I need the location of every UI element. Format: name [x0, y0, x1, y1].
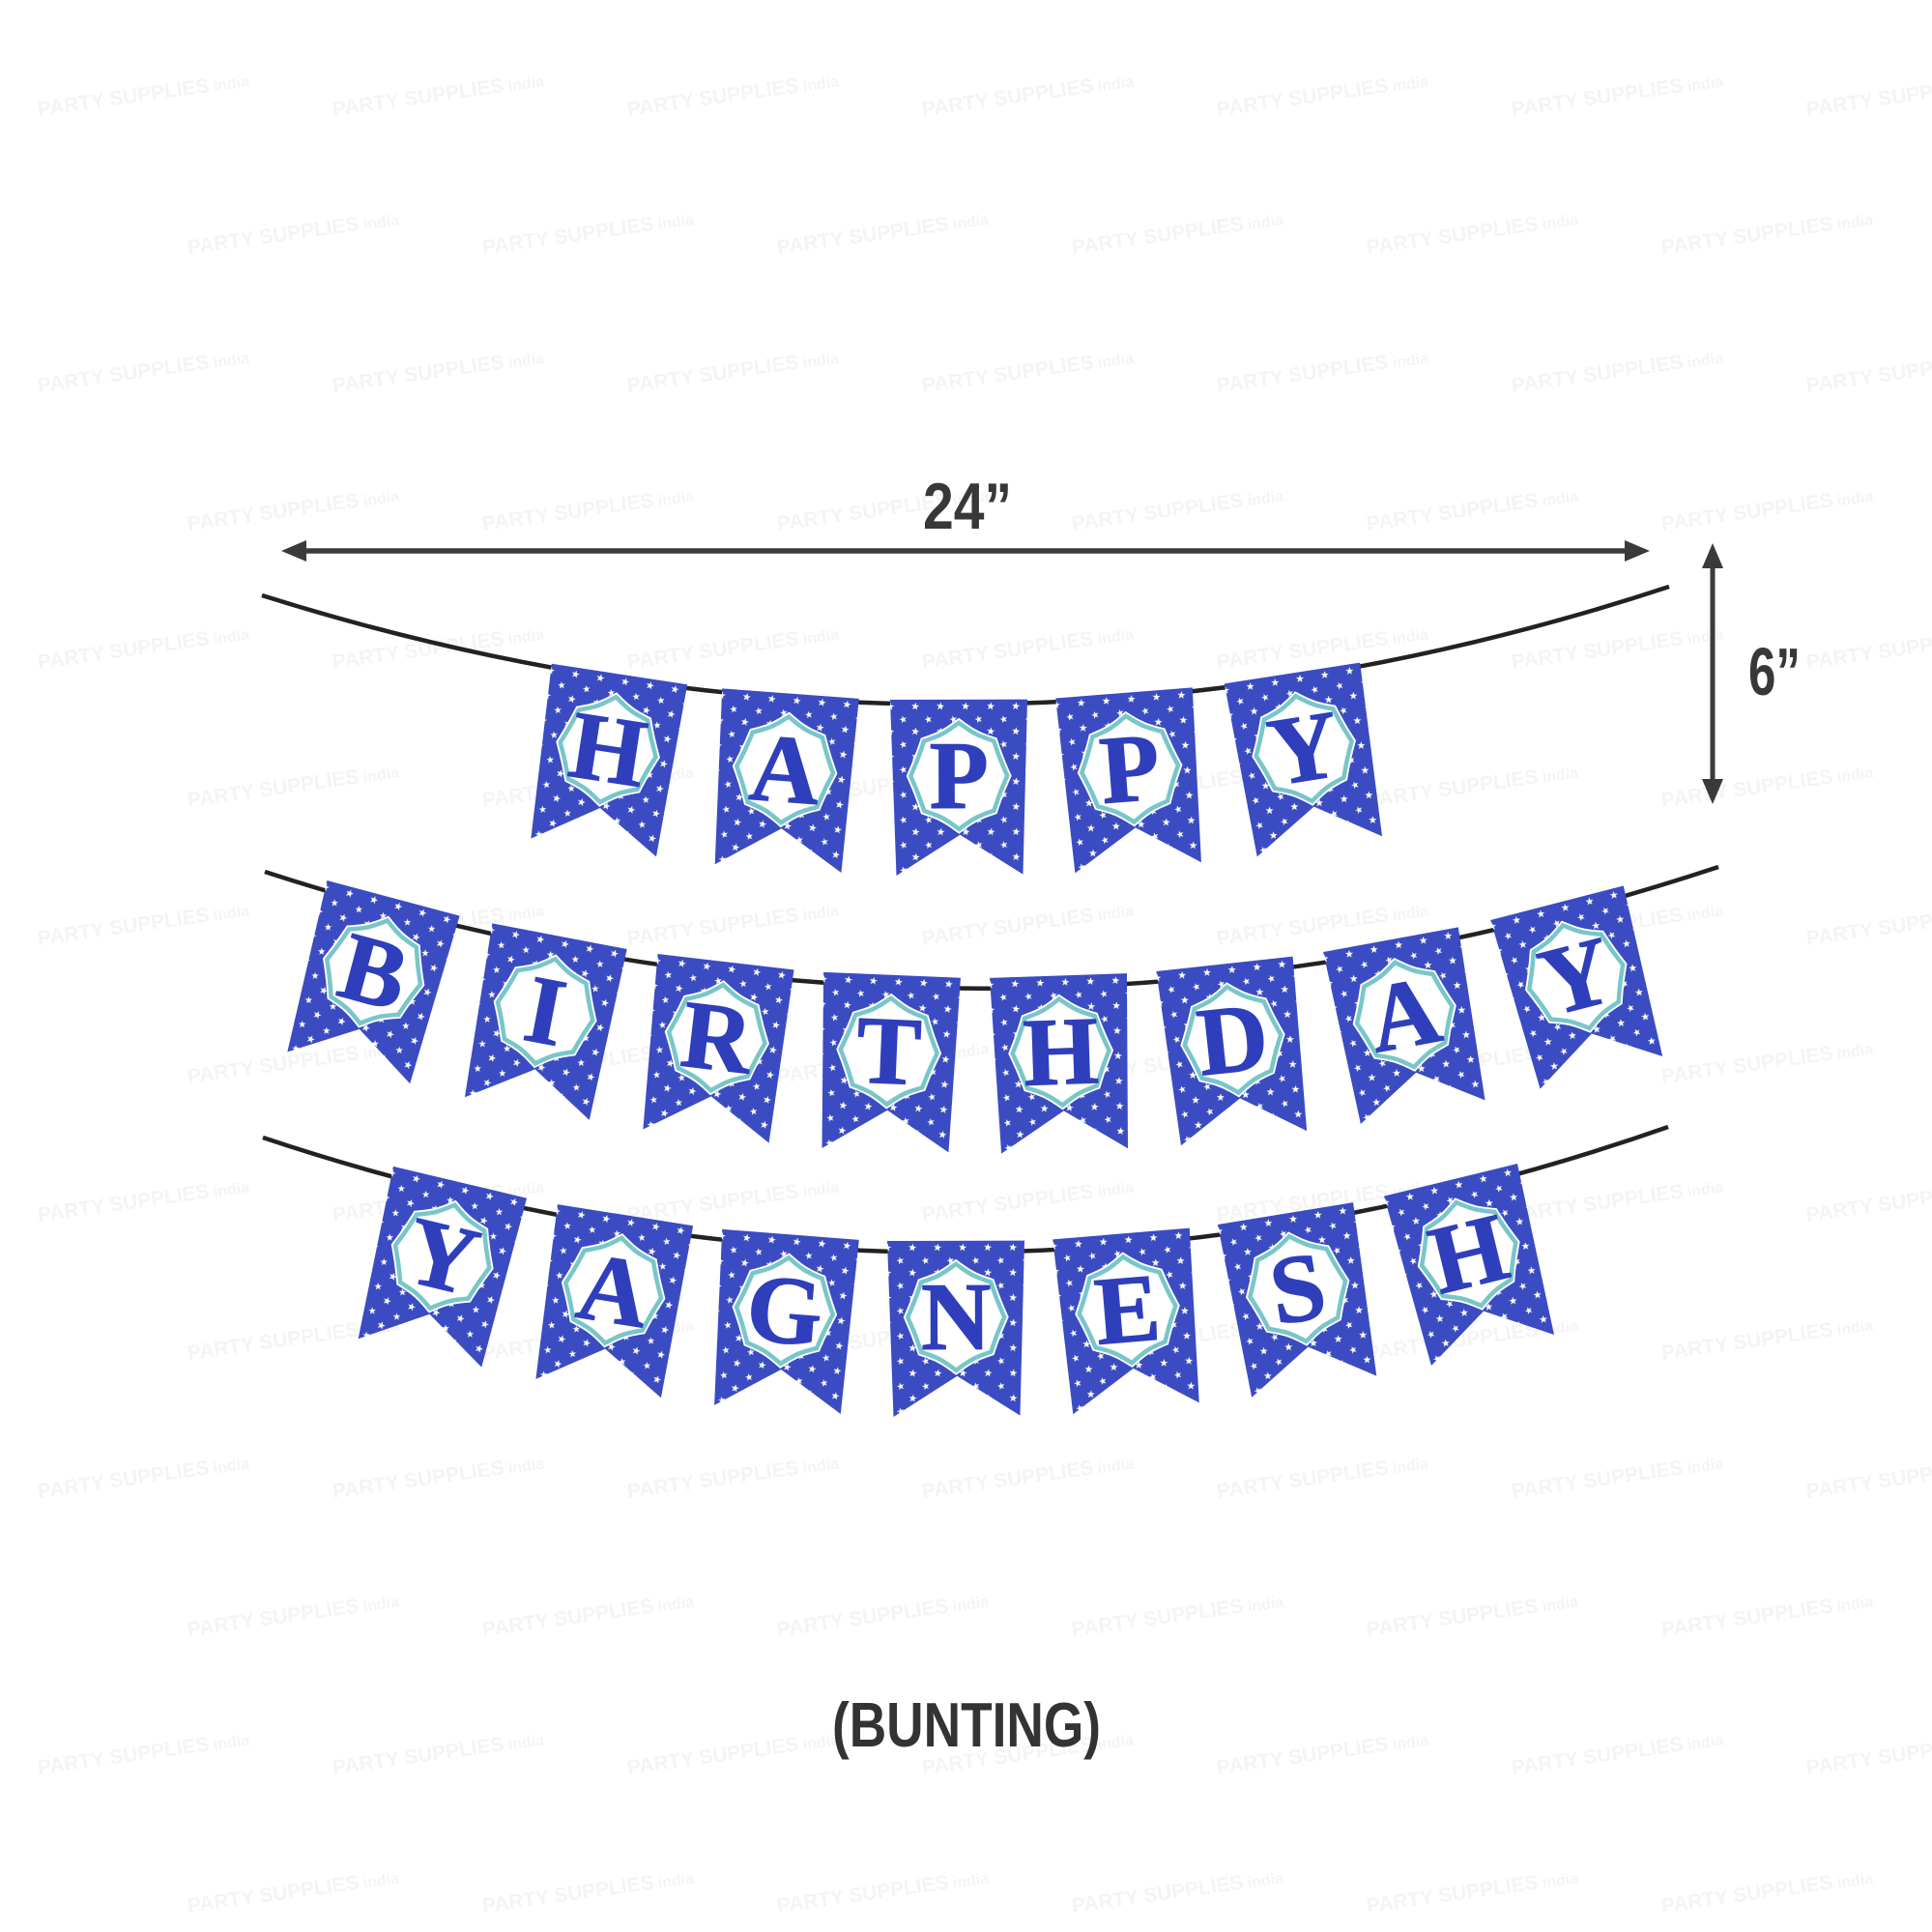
- svg-text:6”: 6”: [1748, 634, 1801, 709]
- svg-text:T: T: [854, 995, 923, 1106]
- svg-text:N: N: [921, 1263, 992, 1370]
- svg-text:H: H: [1022, 996, 1100, 1107]
- svg-text:R: R: [677, 980, 760, 1095]
- svg-text:(BUNTING): (BUNTING): [832, 1689, 1101, 1760]
- svg-text:D: D: [1193, 982, 1274, 1096]
- svg-text:E: E: [1091, 1254, 1165, 1366]
- svg-text:A: A: [746, 713, 823, 825]
- svg-text:H: H: [562, 690, 653, 807]
- svg-text:24”: 24”: [923, 470, 1012, 543]
- svg-text:P: P: [1096, 712, 1164, 823]
- svg-text:P: P: [930, 722, 989, 829]
- svg-text:G: G: [743, 1254, 826, 1367]
